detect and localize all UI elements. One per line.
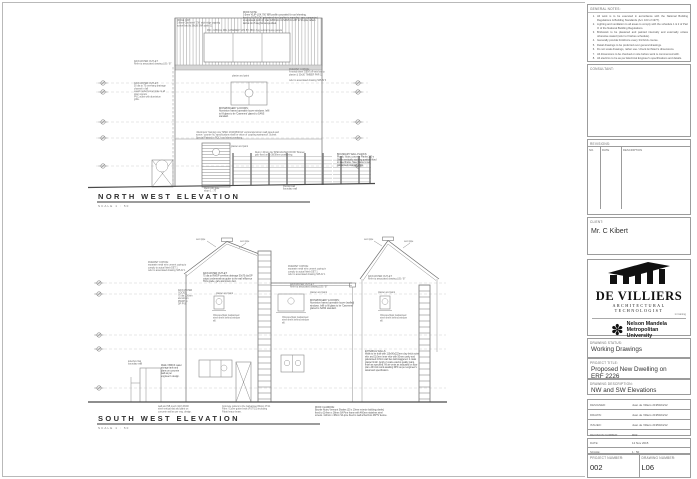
- note-text: Lighting and ventilation to all areas to…: [597, 23, 688, 30]
- drawing-status-value: Working Drawings: [588, 345, 690, 353]
- general-note-item: 5.Detail drawings to be preferred over g…: [590, 44, 688, 48]
- sw-elevation-title: SOUTH WEST ELEVATION: [98, 414, 240, 423]
- general-note-item: 1.All work is to be executed in accordan…: [590, 15, 688, 22]
- client-name: Mr. C Kibert: [588, 224, 690, 235]
- level-marker: [95, 292, 104, 296]
- annotation-text: vent pipe: [196, 238, 206, 241]
- annotation-text: RAIN WATER OUTLET:Refer to associated dr…: [368, 275, 406, 281]
- general-notes-list: 1.All work is to be executed in accordan…: [588, 12, 690, 61]
- drawing-description-box: DRAWING DESCRIPTION: NW and SW Elevation…: [587, 379, 691, 395]
- firm-logo-icon: [606, 262, 672, 285]
- general-notes-title: GENERAL NOTES:: [588, 5, 690, 11]
- date-label: DATE:: [588, 441, 632, 445]
- level-marker: [99, 120, 108, 124]
- note-text: All dimensions to be checked on site bef…: [597, 53, 680, 57]
- level-marker: [99, 81, 108, 85]
- annotation-text: plaster and paint: [216, 292, 233, 295]
- issued-value: Juan de Villiers 2195024/12: [632, 423, 668, 427]
- level-marker: [354, 136, 363, 140]
- firm-tagline: in training: [588, 313, 690, 316]
- elevation-drawings: NORTH WEST ELEVATION SCALE 1 : 50: [0, 0, 585, 479]
- annotation-text: plaster and paint: [310, 291, 327, 294]
- vent-pipe-leaders: [207, 241, 410, 248]
- annotation-text: plaster and paint: [378, 291, 395, 294]
- firm-subtitle: ARCHITECTURAL TECHNOLOGIST: [588, 303, 690, 313]
- note-number: 1.: [590, 15, 595, 22]
- note-number: 7.: [590, 53, 595, 57]
- nw-elevation-title: NORTH WEST ELEVATION: [98, 192, 240, 201]
- annotation-text: Obscure/plain Galvanisedsteel sheet behi…: [213, 314, 240, 322]
- annotation-text: ROOF CLADDING:Bourke Nutec Vermont Shake…: [315, 406, 388, 417]
- revisions-col-no: NO.: [588, 147, 601, 209]
- level-marker: [95, 281, 104, 285]
- level-marker: [99, 164, 108, 168]
- revisions-col-description: DESCRIPTION: [622, 147, 690, 209]
- annotation-text: plaster and paint: [232, 75, 249, 78]
- drawing-status-box: DRAWING STATUS: Working Drawings: [587, 338, 691, 358]
- level-marker: [354, 81, 363, 85]
- annotation-text: EXTERNAL WALLS:Walls to be built with 11…: [365, 350, 419, 372]
- revisions-box: REVISIONS: NO. DATE DESCRIPTION: [587, 139, 691, 215]
- ground-line: [88, 184, 375, 188]
- ridge-cap: [222, 238, 233, 242]
- lean-to: [140, 368, 161, 402]
- drawing-description-value: NW and SW Elevations: [588, 386, 690, 394]
- louvre-stack: [258, 251, 271, 402]
- general-note-item: 8.All electrics to be as per Electrical …: [590, 57, 688, 61]
- annotation-text: vent pipe: [404, 240, 414, 243]
- note-number: 6.: [590, 48, 595, 52]
- revisions-table: NO. DATE DESCRIPTION: [588, 147, 690, 209]
- level-marker: [99, 90, 108, 94]
- scale-label: SCALE:: [588, 450, 632, 454]
- annotation-text: refer to associated drawing S05-B/ 3: [289, 79, 327, 82]
- designed-row: DESIGNED: Juan de Villiers 2195024/12: [588, 400, 690, 410]
- annotation-text: BOUNDARY WALL PLANKS:Plumb, Nutec concre…: [337, 153, 377, 167]
- note-text: Do not scale drawings, rather use / chec…: [597, 48, 674, 52]
- revision-number-value: R02: [632, 433, 637, 437]
- drawing-number-label: DRAWING NUMBER:: [642, 456, 689, 460]
- detail-marker: [245, 89, 253, 97]
- general-note-item: 2.Lighting and ventilation to all areas …: [590, 23, 688, 30]
- clerestory-window: [204, 33, 290, 62]
- annotation-text: vent pipe: [240, 240, 250, 243]
- designed-label: DESIGNED:: [588, 403, 632, 407]
- university-name: Nelson Mandela Metropolitan University: [627, 321, 667, 339]
- drawing-sheet: NORTH WEST ELEVATION SCALE 1 : 50: [0, 0, 697, 479]
- issued-label: ISSUED:: [588, 423, 632, 427]
- annotation-text: Obscure/plain Galvanisedsteel sheet behi…: [380, 314, 407, 322]
- note-number: 5.: [590, 44, 595, 48]
- general-note-item: 4.Generally provide brickforce every 3rd…: [590, 39, 688, 43]
- level-marker: [95, 333, 104, 337]
- level-marker: [95, 386, 104, 390]
- general-notes-box: GENERAL NOTES: 1.All work is to be execu…: [587, 4, 691, 62]
- note-number: 4.: [590, 39, 595, 43]
- annotation-text: Obscure/plain Galvanisedsteel sheet behi…: [282, 316, 309, 324]
- project-title-line1: Proposed New Dwelling on: [591, 366, 667, 373]
- general-note-item: 6.Do not scale drawings, rather use / ch…: [590, 48, 688, 52]
- sw-elevation: SOUTH WEST ELEVATION SCALE 1 : 50: [88, 237, 447, 430]
- annotation-text: RAIN WATER OUTLET:50 dia to 75 overhang …: [134, 82, 167, 101]
- sw-elevation-scale: SCALE 1 : 50: [98, 426, 129, 430]
- revisions-col-date: DATE: [601, 147, 622, 209]
- meta-table: DESIGNED: Juan de Villiers 2195024/12 DR…: [587, 399, 691, 436]
- date-scale-table: DATE: 12 Nov 2015 SCALE: 1 : 50: [587, 438, 691, 454]
- project-number-cell: PROJECT NUMBER: 002: [588, 455, 640, 477]
- louvre-stack: [419, 285, 430, 402]
- ridge-cap: [383, 237, 394, 241]
- designed-value: Juan de Villiers 2195024/12: [632, 403, 668, 407]
- annotation-text: Walls / BRICK waterstorage tank andplans…: [161, 364, 182, 378]
- level-marker: [99, 136, 108, 140]
- note-text: Brickwork to be plastered and painted in…: [597, 31, 688, 38]
- title-block: GENERAL NOTES: 1.All work is to be execu…: [585, 2, 695, 477]
- level-marker: [95, 347, 104, 351]
- note-number: 8.: [590, 57, 595, 61]
- date-row: DATE: 12 Nov 2015: [588, 439, 690, 448]
- drawn-value: Juan de Villiers 2195024/12: [632, 413, 668, 417]
- drawing-number-cell: DRAWING NUMBER: L06: [640, 455, 691, 477]
- detail-marker: [213, 149, 220, 156]
- annotation-text: RAIN WATER OUTLET:Refer to associated dr…: [290, 283, 328, 289]
- note-text: Detail drawings to be preferred over gen…: [597, 44, 662, 48]
- general-note-item: 7.All dimensions to be checked on site b…: [590, 53, 688, 57]
- consultant-label: CONSULTANT:: [588, 65, 690, 71]
- date-value: 12 Nov 2015: [632, 441, 648, 445]
- annotation-text: letterbox flagboundary wall: [128, 360, 143, 366]
- issued-row: ISSUED: Juan de Villiers 2195024/12: [588, 420, 690, 430]
- annotation-text: wall and NB mesh (110) PACKsteel vertica…: [158, 405, 192, 413]
- level-marker: [354, 90, 363, 94]
- annotation-text: IRONMONGERY & DOORS:Aluminium framed ope…: [310, 300, 354, 310]
- consultant-box: CONSULTANT:: [587, 64, 691, 137]
- university-logo: ✽ Nelson Mandela Metropolitan University: [588, 321, 690, 339]
- annotation-text: Concrete gutters to the Galvanised Motor…: [222, 405, 271, 413]
- annotation-labels: RIDGE CAP:0.6mm Galv steel 'CW' style ri…: [128, 12, 419, 417]
- boundary-fence: [233, 155, 332, 184]
- university-flower-icon: ✽: [611, 323, 624, 338]
- annotation-text: PARAPET COPING:separate metal w/m cement…: [148, 261, 187, 272]
- annotation-text: PARAPET COPING:separate metal w/m cement…: [288, 265, 327, 276]
- project-number-label: PROJECT NUMBER:: [590, 456, 637, 460]
- annotation-text: precast wallboundary wall: [283, 185, 298, 191]
- scale-value: 1 : 50: [632, 450, 639, 454]
- drawing-number-value: L06: [642, 463, 689, 472]
- nw-elevation-scale: SCALE 1 : 50: [98, 204, 129, 208]
- project-title-box: PROJECT TITLE: Proposed New Dwelling on …: [587, 358, 691, 379]
- project-number-value: 002: [590, 463, 637, 472]
- note-number: 2.: [590, 23, 595, 30]
- annotation-text: plaster and paint: [231, 145, 248, 148]
- note-text: All work is to be executed in accordance…: [597, 15, 688, 22]
- annotation-text: RAIN WATER OUTLET:75 dia to RWDP overflo…: [203, 272, 253, 283]
- annotation-text: RAIN WATERGOODS:75 dia 100mmaluminiumRWD…: [178, 289, 193, 306]
- divider: [592, 318, 686, 319]
- note-text: All electrics to be as per Electrical En…: [597, 57, 682, 61]
- annotation-text: RAIN WATER OUTLET:Refer to associated dr…: [134, 60, 172, 66]
- detail-marker: [156, 160, 168, 172]
- drawn-row: DRAWN: Juan de Villiers 2195024/12: [588, 410, 690, 420]
- firm-logo-box: DE VILLIERS ARCHITECTURAL TECHNOLOGIST i…: [587, 259, 691, 336]
- drawn-label: DRAWN:: [588, 413, 632, 417]
- note-text: Generally provide brickforce every 3rd b…: [597, 39, 658, 43]
- annotation-text: 960 x 1850mm DBL CASEMENT W/1 BY 380m hn…: [207, 29, 283, 32]
- general-note-item: 3.Brickwork to be plastered and painted …: [590, 31, 688, 38]
- client-box: CLIENT: Mr. C Kibert: [587, 217, 691, 255]
- number-box: PROJECT NUMBER: 002 DRAWING NUMBER: L06: [587, 454, 691, 478]
- note-number: 3.: [590, 31, 595, 38]
- level-marker: [354, 120, 363, 124]
- revision-number-label: REVISION NUMBER:: [588, 433, 632, 437]
- annotation-text: vent pipe: [364, 238, 374, 241]
- annotation-text: IRONMONGERY & DOORS:Aluminium framed ope…: [219, 108, 270, 118]
- firm-name: DE VILLIERS: [588, 290, 690, 303]
